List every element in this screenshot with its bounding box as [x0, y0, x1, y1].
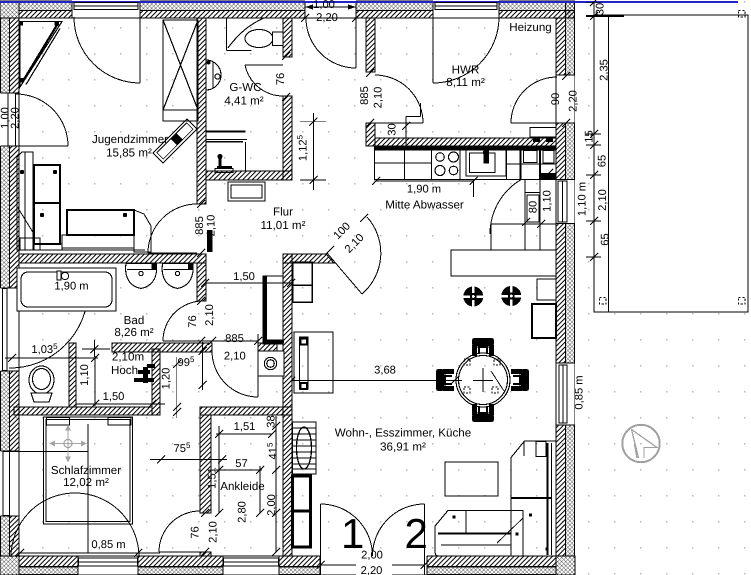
svg-text:HWR: HWR	[452, 64, 480, 77]
svg-text:2,10: 2,10	[204, 304, 216, 326]
svg-text:2,10: 2,10	[224, 351, 246, 363]
svg-text:2,00: 2,00	[361, 550, 383, 562]
svg-text:2,10: 2,10	[206, 215, 218, 237]
svg-text:Ankleide: Ankleide	[220, 480, 264, 493]
svg-text:36,91 m²: 36,91 m²	[380, 441, 426, 454]
svg-text:12,02 m²: 12,02 m²	[63, 476, 109, 489]
svg-text:90: 90	[550, 93, 562, 105]
svg-text:2,10: 2,10	[597, 189, 609, 211]
svg-text:30: 30	[595, 3, 607, 15]
svg-text:G-WC: G-WC	[229, 81, 261, 94]
svg-text:1,51: 1,51	[234, 421, 256, 433]
svg-text:1,10: 1,10	[542, 190, 554, 212]
svg-text:8,26 m²: 8,26 m²	[114, 326, 153, 339]
svg-text:0,85 m: 0,85 m	[91, 539, 125, 551]
svg-text:2,80: 2,80	[237, 501, 249, 523]
svg-text:1,00: 1,00	[313, 0, 335, 11]
svg-text:3,68: 3,68	[374, 365, 396, 377]
svg-text:15,85 m²: 15,85 m²	[106, 147, 152, 160]
svg-text:Hoch: Hoch	[111, 364, 138, 377]
svg-text:1,50: 1,50	[233, 271, 255, 283]
svg-text:Heizung: Heizung	[509, 21, 552, 34]
svg-text:57: 57	[235, 458, 247, 470]
svg-text:30: 30	[387, 123, 399, 135]
svg-text:885: 885	[359, 86, 371, 105]
svg-text:1,10: 1,10	[79, 364, 91, 386]
svg-text:Jugendzimmer: Jugendzimmer	[92, 133, 168, 146]
svg-text:2,20: 2,20	[316, 12, 338, 24]
svg-text:885: 885	[194, 216, 206, 235]
svg-text:885: 885	[225, 333, 244, 345]
svg-text:2,20: 2,20	[568, 90, 580, 112]
svg-text:2,10: 2,10	[208, 521, 220, 543]
svg-text:2,20: 2,20	[10, 107, 22, 129]
svg-text:2,35: 2,35	[599, 59, 611, 81]
svg-text:38: 38	[266, 415, 278, 427]
svg-text:15: 15	[584, 130, 596, 142]
svg-text:1,51: 1,51	[207, 467, 219, 489]
svg-text:1,50: 1,50	[103, 391, 125, 403]
svg-text:0,85 m: 0,85 m	[574, 375, 586, 409]
svg-text:76: 76	[190, 526, 202, 538]
svg-text:8,11 m²: 8,11 m²	[446, 76, 485, 89]
svg-text:65: 65	[597, 155, 609, 167]
svg-text:2,10: 2,10	[373, 87, 385, 109]
svg-text:1,90 m: 1,90 m	[54, 281, 88, 293]
svg-text:Flur: Flur	[273, 206, 293, 219]
svg-text:2,10m: 2,10m	[112, 351, 144, 364]
svg-text:1,90 m: 1,90 m	[407, 184, 441, 196]
svg-text:2: 2	[405, 510, 428, 557]
svg-text:2,00: 2,00	[266, 494, 278, 516]
svg-text:1,20: 1,20	[161, 368, 173, 390]
svg-text:11,01 m²: 11,01 m²	[261, 219, 306, 232]
svg-text:1: 1	[341, 510, 364, 557]
svg-text:2,20: 2,20	[361, 565, 383, 575]
svg-text:Wohn-, Esszimmer, Küche: Wohn-, Esszimmer, Küche	[335, 427, 471, 440]
svg-text:Mitte Abwasser: Mitte Abwasser	[385, 199, 464, 212]
svg-text:80: 80	[528, 201, 540, 213]
svg-text:76: 76	[187, 315, 199, 327]
svg-text:65: 65	[600, 233, 612, 245]
svg-text:4,41 m²: 4,41 m²	[224, 95, 263, 108]
svg-text:76: 76	[275, 73, 287, 85]
svg-text:1,10 m: 1,10 m	[577, 182, 589, 216]
